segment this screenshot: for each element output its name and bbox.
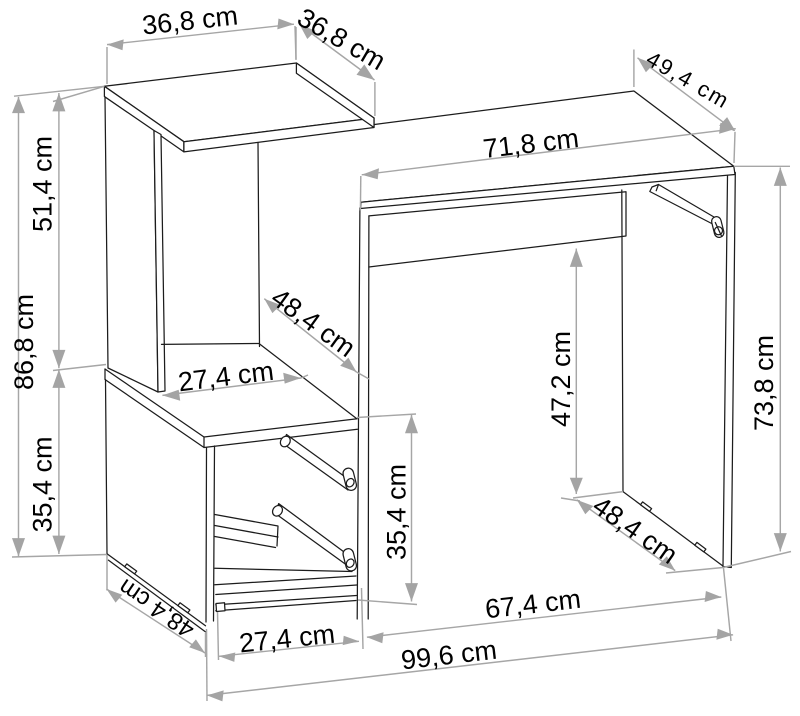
svg-text:51,4 cm: 51,4 cm	[28, 136, 58, 232]
svg-text:35,4 cm: 35,4 cm	[382, 464, 412, 560]
svg-text:35,4 cm: 35,4 cm	[28, 436, 58, 532]
svg-text:73,8 cm: 73,8 cm	[749, 335, 779, 431]
svg-text:86,8 cm: 86,8 cm	[9, 294, 39, 390]
svg-text:47,2 cm: 47,2 cm	[546, 331, 576, 427]
